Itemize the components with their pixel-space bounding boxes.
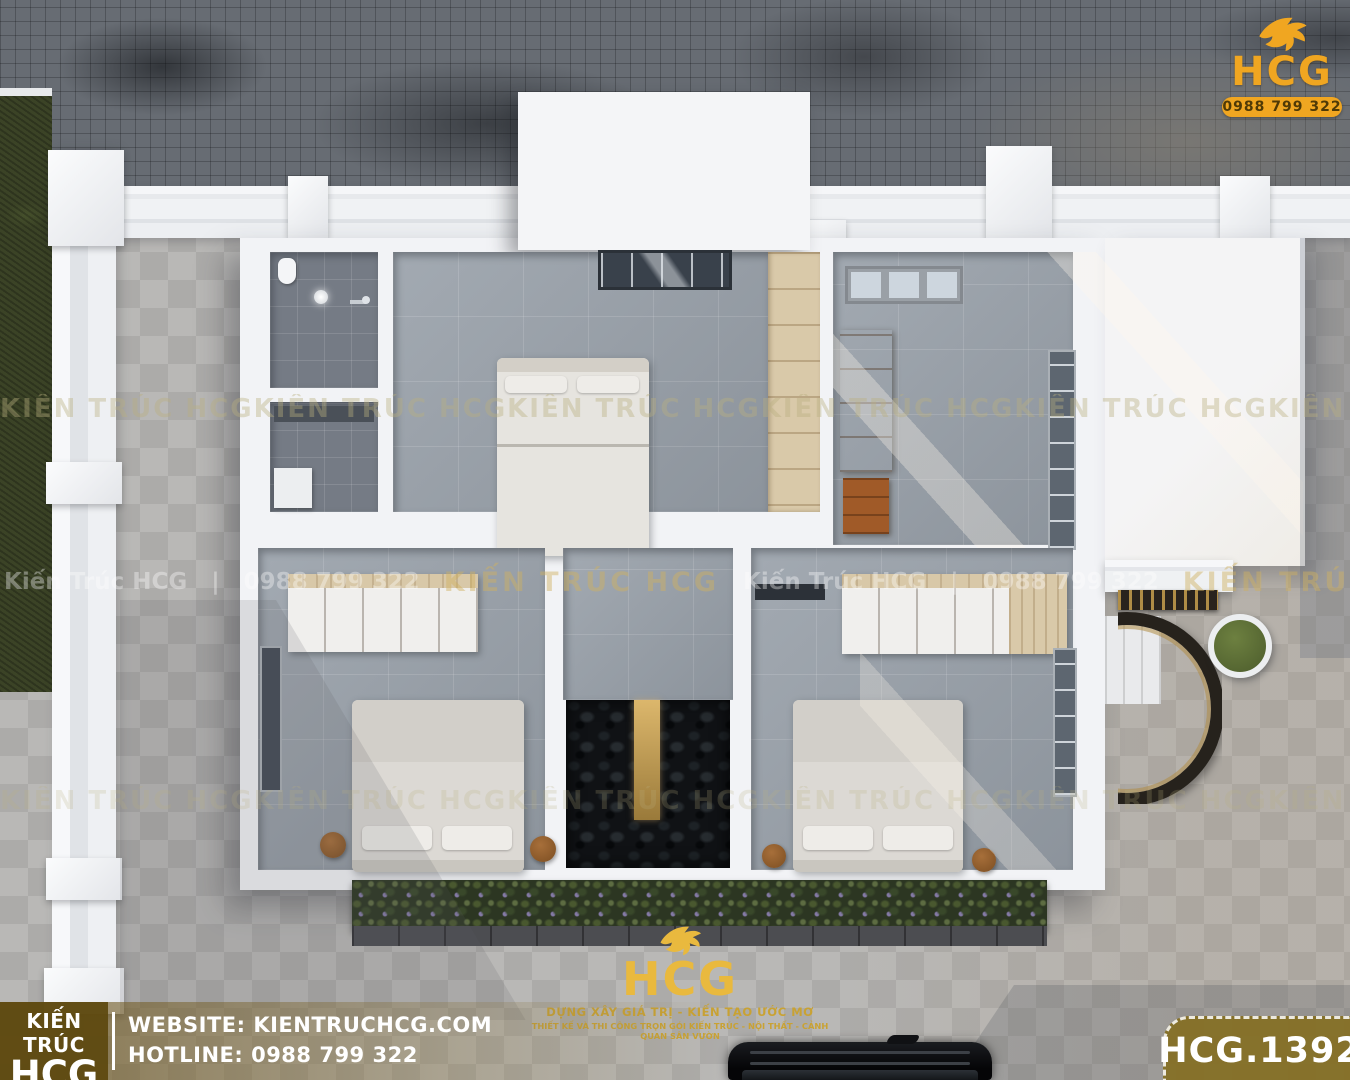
laundry-counter [274, 406, 374, 422]
wardrobe-doors [288, 588, 478, 652]
builtin-wardrobe [768, 252, 820, 512]
bedroom3-wardrobe [842, 574, 1067, 654]
bedroom3-window [1053, 648, 1077, 797]
doorway-opening [755, 584, 825, 600]
shower-head [362, 296, 370, 304]
pillow [577, 376, 639, 393]
bedroom3-bed [793, 700, 963, 872]
bedside-stool [320, 832, 346, 858]
footer-hotline: HOTLINE: 0988 799 322 [128, 1040, 492, 1070]
porch-cornice [1105, 560, 1233, 592]
phone-badge: 0988 799 322 [1222, 97, 1342, 117]
skylight-pane [889, 272, 919, 298]
watermark-text: KIẾN TRÚC HCG [0, 786, 254, 816]
bedside-stool [530, 836, 556, 862]
footer-brand-line2: HCG [0, 1057, 108, 1080]
windshield [742, 1070, 978, 1080]
pillow [442, 826, 512, 850]
design-code: HCG.1392 [1158, 1031, 1350, 1071]
curved-canopy [1118, 612, 1222, 804]
footer-bar: KIẾN TRÚC HCG WEBSITE: KIENTRUCHCG.COM H… [0, 1002, 760, 1080]
watermark-separator: | [211, 569, 219, 595]
building-shadow [1300, 238, 1350, 658]
pillow [883, 826, 953, 850]
wood-chest [843, 478, 889, 534]
pillow [803, 826, 873, 850]
roof-rail [750, 1062, 970, 1065]
footboard [793, 860, 963, 872]
study-side-window [1048, 350, 1076, 550]
fence-pillar-cap [1220, 176, 1270, 238]
blanket [352, 700, 524, 762]
pillow [505, 376, 567, 393]
brand-logo-top-right: HCG 0988 799 322 [1222, 10, 1342, 117]
roof-block-top [518, 92, 810, 250]
skylight-frame [845, 266, 963, 304]
watermark-text: KIẾN TRÚC HCG [1268, 786, 1350, 816]
bird-icon [1253, 10, 1311, 52]
fence-pillar-cap [986, 146, 1052, 240]
fence-pillar-cap [288, 176, 328, 238]
bird-icon [655, 920, 705, 956]
washing-machine [274, 468, 312, 508]
toilet [278, 258, 296, 284]
hall-floor [563, 548, 733, 700]
blanket [793, 700, 963, 762]
design-code-badge: HCG.1392 [1163, 1016, 1350, 1080]
brand-wordmark: HCG [520, 956, 840, 1002]
bedroom2-bed [352, 700, 524, 872]
grass-strip [0, 96, 52, 692]
round-planter-bush [1208, 614, 1272, 678]
wood-cabinet [840, 330, 892, 472]
car-roof [728, 1042, 992, 1080]
master-bed [497, 358, 649, 556]
footer-contact-info: WEBSITE: KIENTRUCHCG.COM HOTLINE: 0988 7… [128, 1010, 492, 1071]
wardrobe-shelf-unit [1009, 574, 1067, 654]
canopy-ring [1118, 612, 1222, 804]
footer-brand-box: KIẾN TRÚC HCG [0, 1002, 108, 1080]
skylight-pane [851, 272, 881, 298]
bedroom-window [598, 250, 732, 290]
bedroom2-wardrobe [288, 574, 478, 652]
roof-rail [750, 1051, 970, 1054]
fence-pillar-cap [46, 858, 122, 900]
skylight-pane [927, 272, 957, 298]
wardrobe-top [288, 574, 478, 588]
fence-pillar-cap [46, 462, 122, 504]
bedside-stool [762, 844, 786, 868]
fence-pillar-cap [48, 150, 124, 246]
footer-divider [112, 1012, 115, 1070]
roof-wing-right [1105, 238, 1305, 566]
brand-wordmark: HCG [1222, 52, 1342, 92]
gold-accent-strip [634, 700, 660, 820]
blanket-fold [497, 444, 649, 447]
pillow [362, 826, 432, 850]
architectural-render-canvas: KIẾN TRÚC HCG KIẾN TRÚC HCG KIẾN TRÚC HC… [0, 0, 1350, 1080]
headboard [497, 358, 649, 372]
ceiling-lamp [314, 290, 328, 304]
footboard [352, 860, 524, 872]
porch-railing [1118, 590, 1218, 610]
footer-brand-line1: KIẾN TRÚC [0, 1009, 108, 1057]
bedroom2-window [260, 646, 282, 792]
footer-website: WEBSITE: KIENTRUCHCG.COM [128, 1010, 492, 1040]
antenna [885, 1035, 920, 1044]
bedside-stool [972, 848, 996, 872]
